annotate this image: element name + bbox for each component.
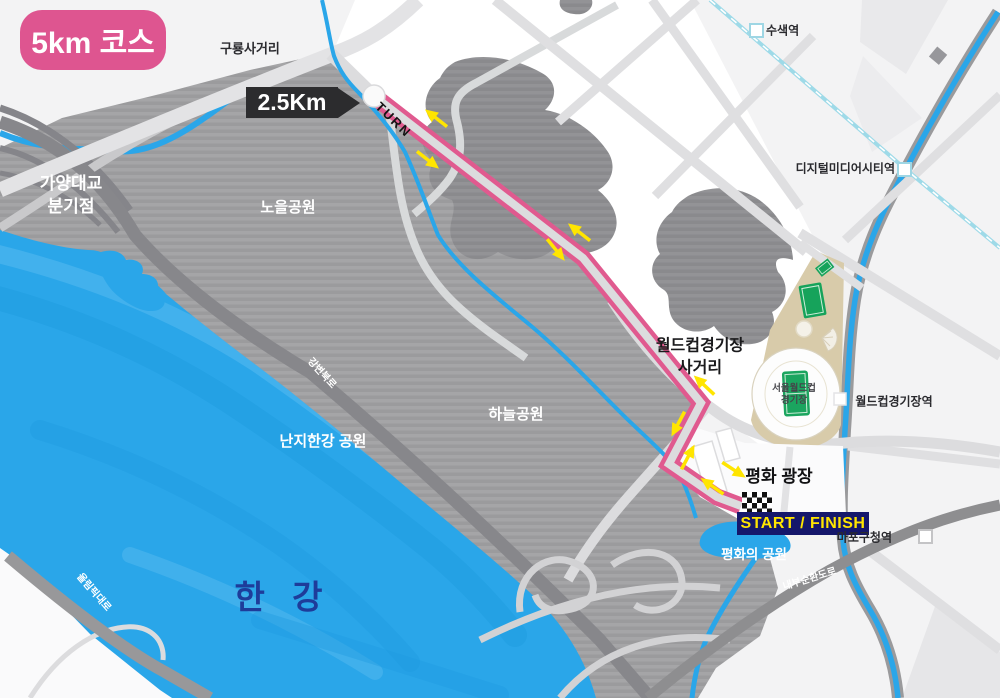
label-station-dmc: 디지털미디어시티역	[796, 163, 895, 176]
label-peace-park: 평화의 공원	[721, 548, 787, 562]
label-worldcup-junction-line2: 사거리	[678, 361, 722, 378]
map-canvas	[0, 0, 1000, 698]
station-marker-dmc	[898, 163, 911, 176]
course-title-badge: 5km 코스	[20, 10, 166, 70]
label-stadium-line2: 경기장	[781, 396, 807, 406]
label-worldcup-junction-line1: 월드컵경기장	[656, 339, 744, 356]
label-haneul-park: 하늘공원	[488, 407, 543, 423]
label-station-susaek: 수색역	[766, 25, 799, 38]
label-gayang-line1: 가양대교	[40, 175, 103, 193]
label-station-worldcup: 월드컵경기장역	[855, 396, 932, 409]
label-gayang-line2: 분기점	[48, 198, 95, 216]
checkered-flag	[742, 492, 772, 514]
label-stadium-line1: 서울월드컵	[772, 384, 816, 394]
label-guryong-junction: 구룡사거리	[220, 42, 280, 56]
course-map: 5km 코스 2.5Km TURN START / FINISH 구룡사거리 가…	[0, 0, 1000, 698]
label-nanji-park: 난지한강 공원	[280, 434, 367, 450]
label-noeul-park: 노을공원	[260, 200, 315, 216]
station-marker-susaek	[750, 24, 763, 37]
label-han-river: 한 강	[235, 581, 332, 616]
station-marker-worldcup	[834, 393, 846, 405]
stadium-plaza-circle	[796, 321, 812, 337]
label-peace-plaza: 평화 광장	[745, 468, 812, 486]
label-station-mapo: 마포구청역	[837, 532, 892, 545]
distance-2-5km-tag: 2.5Km	[246, 87, 338, 118]
station-marker-mapo	[919, 530, 932, 543]
